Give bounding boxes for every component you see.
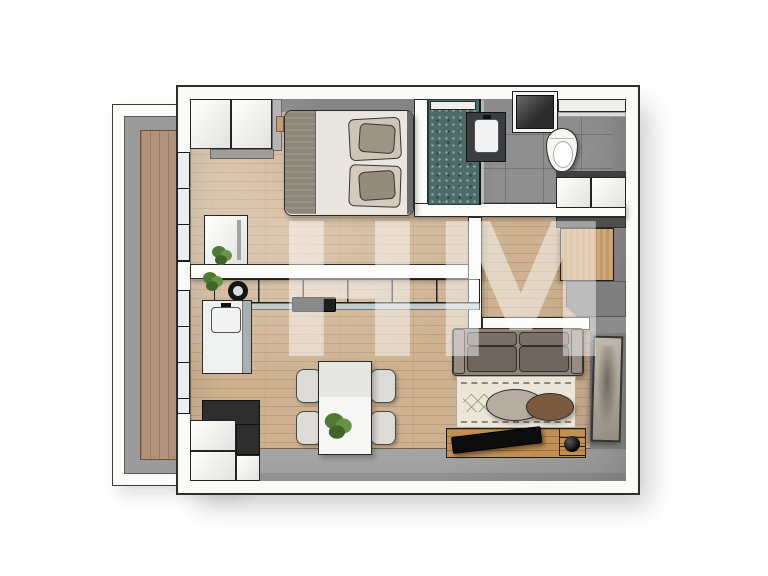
rug-pattern [461,421,571,423]
kitchen-counter [214,279,480,303]
bathroom-cabinet-door [591,177,626,208]
bed [284,110,414,216]
rug-pattern [461,382,571,384]
speaker-knob [564,436,580,452]
leaning-artwork [591,336,624,443]
round-sink [228,281,248,301]
entry-closet-wall [566,281,626,317]
wardrobe-base [210,149,274,159]
floor-plan-render: HM [0,0,768,576]
entry-lintel [556,217,626,228]
toilet-seat [553,141,573,168]
utility-box-top [516,95,554,129]
sofa-armrest [453,329,465,374]
sofa-seat-cushion [519,346,569,372]
dining-chair [370,411,396,445]
sofa-back-cushion [519,332,569,346]
utility-box [512,91,558,133]
kitchen-counter-front [214,303,480,310]
sofa-back-cushion [467,332,517,346]
bathroom-cabinet-door [556,177,591,208]
wash-basin [474,119,499,153]
bedside-table [276,116,284,132]
bed-headboard [407,111,413,214]
bathroom-shelf [558,99,626,112]
sideboard-door [190,420,236,451]
sofa-seat-cushion [467,346,517,372]
dining-table [318,361,372,455]
wardrobe-door [190,99,231,149]
wall-kitchen-partition [190,264,482,279]
cooktop [292,297,336,312]
shower-shelf [430,101,476,110]
entry-door [560,228,614,281]
dining-chair [370,369,396,403]
bed-blanket [285,111,316,214]
media-cabinet [204,215,248,265]
coffee-table-small [526,393,574,421]
pillow [358,170,396,201]
side-counter-face [242,301,251,373]
kitchen-window [177,290,190,414]
kitchen-sink-basin [211,307,241,333]
wall-living-top-gray [590,317,626,333]
sideboard-door [190,451,236,481]
faucet [483,115,491,119]
sofa-armrest [571,329,583,374]
wall-bedroom-bathroom [414,99,428,209]
faucet [221,303,231,307]
pillow [358,123,396,154]
vanity [466,112,506,162]
bedroom-window [177,152,190,262]
wall-hallway-vertical [468,217,482,330]
wardrobe-door [231,99,272,149]
sideboard-door [236,455,260,481]
bathroom-shelf-edge [558,112,626,117]
sofa [452,328,584,376]
sideboard-side [236,424,260,455]
tv-screen-edge [237,220,241,260]
toilet-lid-seam [550,138,574,139]
artwork-sketch [595,346,619,432]
kitchen-side-counter [202,300,252,374]
